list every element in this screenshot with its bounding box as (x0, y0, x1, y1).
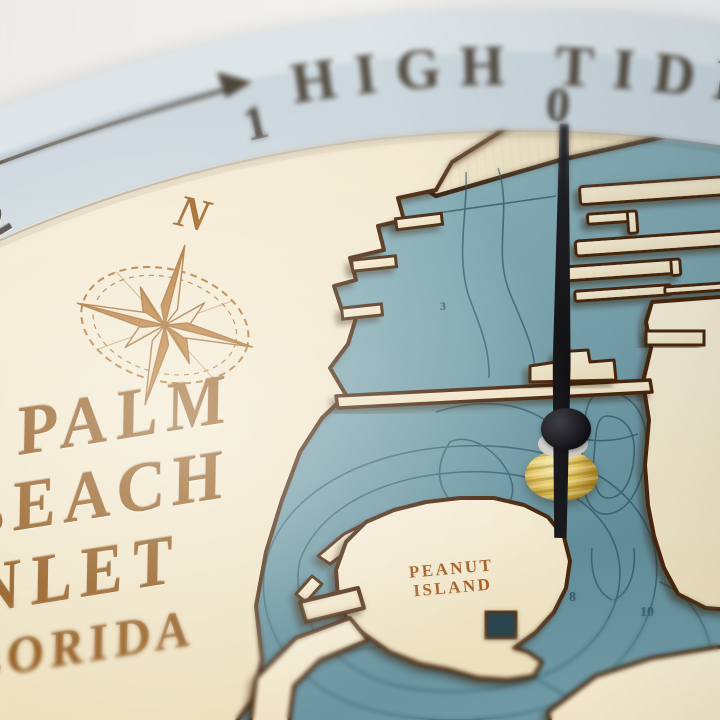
tide-clock-photo: 3 8 10 (0, 0, 720, 720)
ring-title: HIGH TIDE (286, 32, 720, 120)
hand-hub (541, 408, 591, 450)
clockwise-arrow-icon (0, 72, 252, 168)
ring-markings: HIGH TIDE (0, 0, 720, 720)
ring-numeral-0: 0 (544, 81, 571, 131)
svg-text:HIGH TIDE: HIGH TIDE (286, 32, 720, 120)
